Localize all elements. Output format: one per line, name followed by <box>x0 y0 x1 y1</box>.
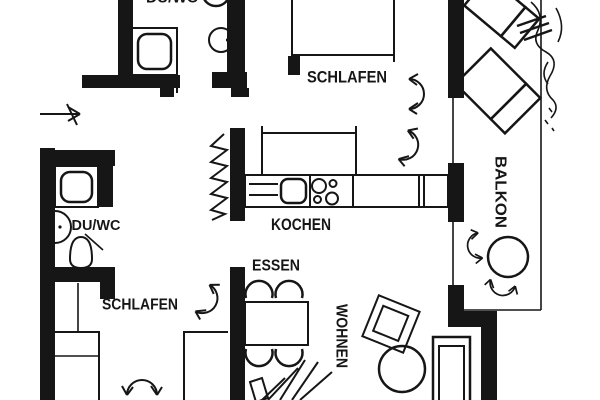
room-label-wohnen: WOHNEN <box>333 304 350 368</box>
door-swing-arrow <box>397 126 424 169</box>
dining-chair <box>245 281 272 298</box>
wall <box>230 128 245 221</box>
room-label-duwc-bottom: DU/WC <box>72 218 122 234</box>
wall <box>448 163 464 222</box>
kitchen-counter <box>245 175 448 207</box>
wall <box>100 267 115 299</box>
floor-plan: DU/WC SCHLAFEN KOCHEN ESSEN SCHLAFEN DU/… <box>0 0 600 400</box>
entrance-arrow-icon <box>40 104 80 125</box>
wall <box>448 311 497 327</box>
sink-unit <box>249 179 306 203</box>
wall <box>230 267 245 400</box>
toilet <box>203 0 229 6</box>
balcony-table <box>488 237 528 277</box>
dining-area <box>245 281 308 366</box>
balcony-chair <box>483 278 519 299</box>
wall <box>82 75 180 88</box>
radiator <box>211 134 227 220</box>
living-room <box>250 295 470 400</box>
room-label-balkon: BALKON <box>492 156 509 228</box>
dining-table <box>245 302 308 345</box>
door-swing-arrow <box>193 280 225 322</box>
wall <box>98 150 113 207</box>
kitchen <box>211 134 448 220</box>
room-label-essen: ESSEN <box>252 258 300 275</box>
armchair <box>362 295 419 352</box>
door-leaf <box>85 234 103 250</box>
balcony-railing <box>464 0 541 310</box>
wardrobe <box>262 126 356 175</box>
door-swing-arrow <box>122 380 162 395</box>
shower <box>55 166 98 207</box>
cooktop <box>312 179 338 205</box>
sofa <box>433 337 470 400</box>
cabinet <box>184 332 228 400</box>
floor-plan-drawing: DU/WC SCHLAFEN KOCHEN ESSEN SCHLAFEN DU/… <box>0 0 600 400</box>
plant <box>517 2 562 131</box>
wall <box>481 327 497 400</box>
wall <box>118 0 133 78</box>
wall <box>231 88 249 97</box>
lounge-chair <box>455 48 540 133</box>
room-label-schlafen-top: SCHLAFEN <box>307 68 387 87</box>
walls <box>40 0 497 400</box>
bed <box>55 332 99 400</box>
wall <box>212 72 247 88</box>
room-label-kochen: KOCHEN <box>271 216 331 234</box>
door-swing-arrow <box>409 74 424 114</box>
wall <box>160 88 174 97</box>
lounge-chair <box>464 0 539 48</box>
door-swings <box>122 74 424 395</box>
wall <box>448 285 464 311</box>
wall <box>288 56 300 75</box>
washbasin <box>55 211 71 243</box>
toilet <box>70 237 92 268</box>
wall <box>227 0 245 73</box>
balcony-chair <box>465 229 483 265</box>
bathroom-bottom <box>55 166 103 268</box>
bed <box>292 0 394 62</box>
balcony <box>455 0 561 299</box>
bedroom-top <box>262 0 394 175</box>
dining-chair <box>276 349 303 366</box>
room-label-schlafen-bottom: SCHLAFEN <box>102 297 178 314</box>
dining-chair <box>245 349 272 366</box>
room-label-duwc-top: DU/WC <box>146 0 198 7</box>
dining-chair <box>276 281 303 298</box>
